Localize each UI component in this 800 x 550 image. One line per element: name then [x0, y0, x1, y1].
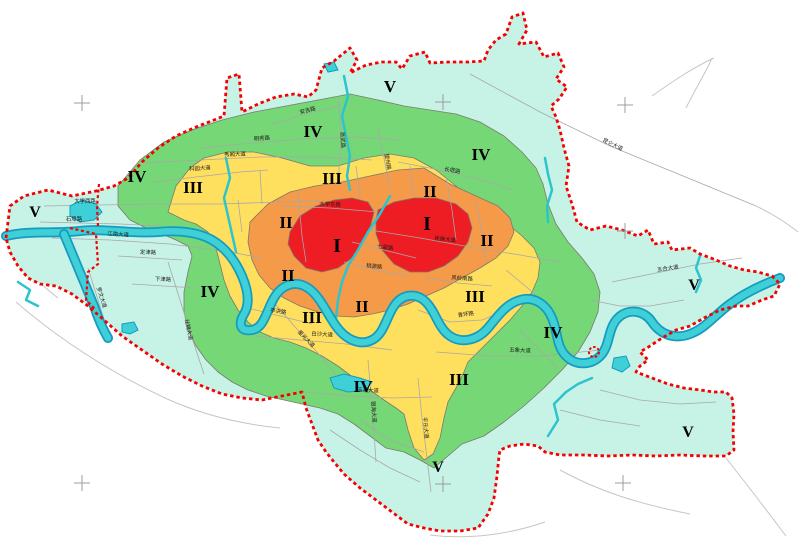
zone-grade-label: V	[384, 77, 397, 96]
zone-grade-label: II	[423, 182, 437, 201]
zone-grade-label: II	[279, 213, 293, 232]
registration-cross-icon	[615, 475, 631, 491]
outside-road-line	[726, 458, 786, 536]
zone-grade-label: IV	[544, 323, 564, 342]
road-label: 石埠路	[66, 215, 83, 223]
outside-road-line	[560, 470, 690, 514]
map-canvas: 大学西路石埠路江南大道科园大道秀厢大道明秀路安吉路邕武路望州路长堽路大学东路民族…	[0, 0, 800, 550]
zone-grade-label: IV	[304, 122, 324, 141]
zone-grade-label: III	[465, 287, 485, 306]
city-land-grade-map: 大学西路石埠路江南大道科园大道秀厢大道明秀路安吉路邕武路望州路长堽路大学东路民族…	[0, 0, 800, 550]
stream	[18, 282, 38, 306]
registration-cross-icon	[74, 95, 90, 111]
zone-grade-label: I	[333, 235, 341, 257]
zone-grade-label: V	[688, 277, 700, 294]
zone-grade-label: V	[682, 424, 694, 441]
zone-grade-label: III	[302, 308, 322, 327]
outside-road-line	[756, 206, 798, 232]
road-label: 大学西路	[74, 197, 96, 205]
road-label: 昆仑大道	[601, 136, 624, 153]
zone-grade-label: III	[449, 370, 469, 389]
registration-cross-icon	[617, 97, 633, 113]
zone-grade-label: IV	[201, 282, 221, 301]
zone-grade-label: III	[183, 178, 203, 197]
zone-grade-label: III	[322, 169, 342, 188]
zone-grade-label: V	[432, 459, 444, 476]
outside-road-line	[652, 58, 714, 96]
zone-grade-label: II	[281, 266, 295, 285]
zone-grade-label: V	[29, 204, 41, 221]
zone-grade-label: IV	[354, 377, 374, 396]
zone-grade-label: II	[355, 297, 369, 316]
zone-grade-label: I	[423, 213, 431, 235]
zone-grade-label: IV	[128, 167, 148, 186]
registration-cross-icon	[74, 475, 90, 491]
zone-grade-label: II	[480, 231, 494, 250]
zone-grade-label: IV	[472, 145, 492, 164]
